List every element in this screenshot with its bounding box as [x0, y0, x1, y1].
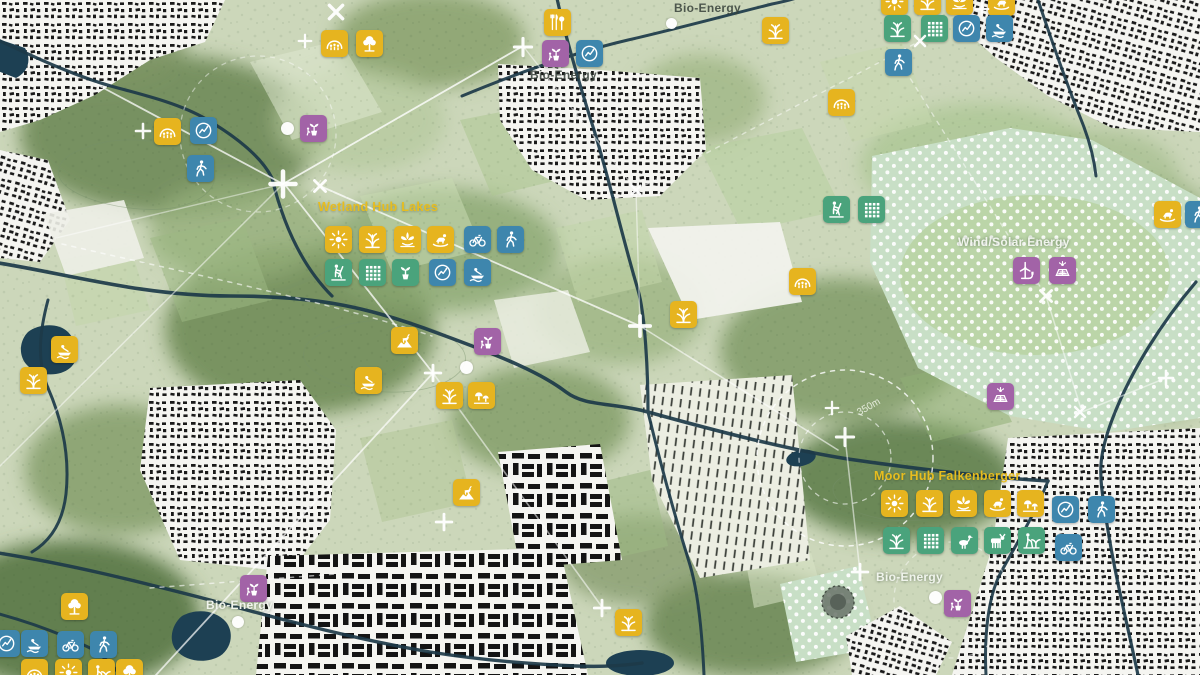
cross-marker	[1032, 282, 1060, 310]
bike-icon	[57, 631, 84, 658]
plus-marker	[297, 33, 313, 49]
boat-icon	[986, 15, 1013, 42]
compass-icon	[0, 630, 20, 657]
waypoint-dot	[232, 616, 244, 628]
plus-marker	[850, 562, 870, 582]
walk-icon	[497, 226, 524, 253]
walk-icon	[1185, 201, 1200, 228]
nursery-icon	[944, 590, 971, 617]
compass-icon	[953, 15, 980, 42]
bike-icon	[1055, 534, 1082, 561]
map-label-bio-energy: Bio-Energy	[876, 570, 943, 584]
shelter-icon	[21, 659, 48, 675]
plus-marker	[974, 1, 990, 17]
plus-marker	[627, 313, 653, 339]
reeds-icon	[670, 301, 697, 328]
goat-icon	[453, 479, 480, 506]
boat-icon	[51, 336, 78, 363]
play-icon	[427, 226, 454, 253]
boat-icon	[21, 630, 48, 657]
reeds-icon	[615, 609, 642, 636]
compass-icon	[1052, 496, 1079, 523]
shelter-icon	[321, 30, 348, 57]
cross-marker	[319, 0, 353, 29]
compass-icon	[576, 40, 603, 67]
tree-icon	[116, 659, 143, 675]
goose-icon	[951, 527, 978, 554]
forage-icon	[468, 382, 495, 409]
tree-icon	[61, 593, 88, 620]
map-label-bio-energy: Bio-Energy	[530, 68, 597, 82]
lotus-icon	[946, 0, 973, 15]
walk-icon	[885, 49, 912, 76]
map-label-wetland-hub-lakes: Wetland Hub Lakes	[318, 200, 438, 214]
picnic-icon	[544, 9, 571, 36]
reeds-icon	[916, 490, 943, 517]
cross-marker	[1067, 399, 1092, 424]
waypoint-dot	[666, 18, 677, 29]
farmer-icon	[823, 196, 850, 223]
map-overlay: Bio-EnergyBio-EnergyBio-EnergyBio-Energy…	[0, 0, 1200, 675]
lotus-icon	[394, 226, 421, 253]
nursery-icon	[474, 328, 501, 355]
nursery-icon	[542, 40, 569, 67]
solar-icon	[987, 383, 1014, 410]
grid-icon	[917, 527, 944, 554]
reeds-icon	[914, 0, 941, 15]
compass-icon	[190, 117, 217, 144]
plus-marker	[423, 363, 443, 383]
boat-icon	[464, 259, 491, 286]
compass-icon	[429, 259, 456, 286]
cow-icon	[984, 527, 1011, 554]
shelter-icon	[154, 118, 181, 145]
gardener-icon	[88, 659, 115, 675]
lotus-icon	[950, 490, 977, 517]
reeds-icon	[762, 17, 789, 44]
play-icon	[988, 0, 1015, 16]
waypoint-dot	[460, 361, 473, 374]
map-label-bio-energy: Bio-Energy	[206, 598, 273, 612]
plus-marker	[1157, 369, 1175, 387]
map-label-wind-solar-energy: Wind/Solar Energy	[958, 235, 1070, 249]
landscape-energy-masterplan-map: Bio-EnergyBio-EnergyBio-EnergyBio-Energy…	[0, 0, 1200, 675]
play-icon	[1154, 201, 1181, 228]
plus-marker	[267, 168, 299, 200]
play-icon	[984, 490, 1011, 517]
farmer-icon	[325, 259, 352, 286]
tree-icon	[356, 30, 383, 57]
plus-marker	[824, 400, 840, 416]
shelter-icon	[828, 89, 855, 116]
bike-icon	[464, 226, 491, 253]
turbine-icon	[1013, 257, 1040, 284]
reeds-icon	[883, 527, 910, 554]
waypoint-dot	[281, 122, 294, 135]
walk-icon	[187, 155, 214, 182]
cross-marker	[306, 172, 334, 200]
shelter-icon	[789, 268, 816, 295]
grid-icon	[858, 196, 885, 223]
plus-marker	[134, 122, 152, 140]
map-label-bio-energy: Bio-Energy	[674, 1, 741, 15]
forage-icon	[1017, 490, 1044, 517]
plus-marker	[512, 36, 534, 58]
nursery-icon	[300, 115, 327, 142]
reeds-icon	[436, 382, 463, 409]
waypoint-dot	[929, 591, 942, 604]
map-label-moor-hub-falkenberger: Moor Hub Falkenberger	[874, 469, 1021, 483]
plus-marker	[592, 598, 612, 618]
solar-icon	[1049, 257, 1076, 284]
goat-icon	[391, 327, 418, 354]
walk-icon	[90, 631, 117, 658]
reeds-icon	[20, 367, 47, 394]
cross-marker	[625, 179, 648, 202]
map-label-350m: 350m	[855, 396, 882, 418]
plus-marker	[434, 512, 454, 532]
gardener-icon	[1018, 527, 1045, 554]
grid-icon	[359, 259, 386, 286]
boat-icon	[355, 367, 382, 394]
walk-icon	[1088, 496, 1115, 523]
reeds-icon	[884, 15, 911, 42]
sun-icon	[55, 659, 82, 675]
reeds-icon	[359, 226, 386, 253]
sprout-icon	[392, 259, 419, 286]
sun-icon	[325, 226, 352, 253]
sun-icon	[881, 0, 908, 15]
plus-marker	[834, 426, 856, 448]
sun-icon	[881, 490, 908, 517]
